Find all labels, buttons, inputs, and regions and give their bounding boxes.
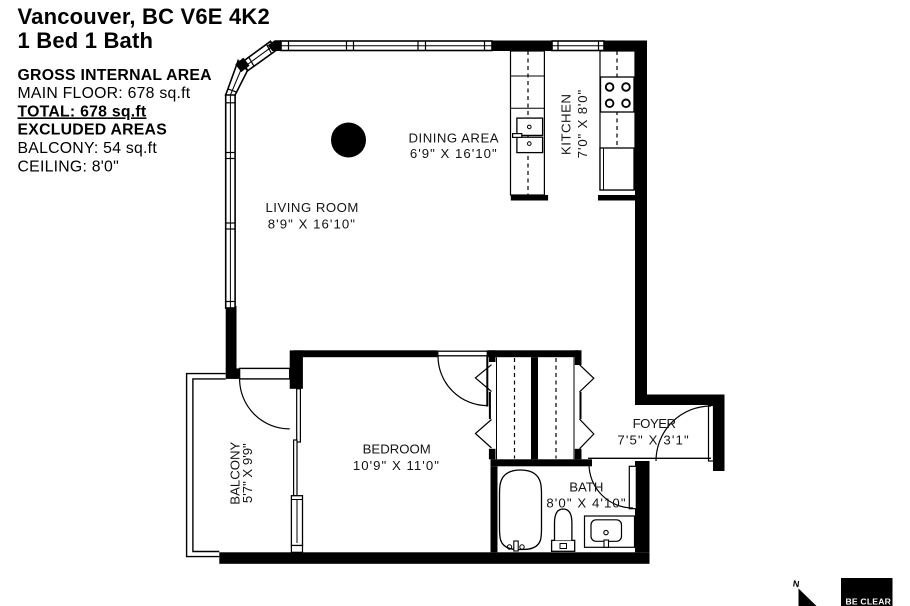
svg-text:7'5" X 3'1": 7'5" X 3'1"	[617, 433, 689, 448]
svg-text:EXCLUDED AREAS: EXCLUDED AREAS	[18, 122, 168, 139]
svg-text:MAIN FLOOR: 678 sq.ft: MAIN FLOOR: 678 sq.ft	[18, 85, 191, 102]
svg-text:7'0" X 8'0": 7'0" X 8'0"	[575, 89, 590, 158]
svg-text:KITCHEN: KITCHEN	[559, 94, 574, 155]
svg-text:LIVING ROOM: LIVING ROOM	[265, 200, 358, 215]
svg-text:N: N	[792, 578, 800, 589]
svg-text:CEILING: 8'0": CEILING: 8'0"	[18, 158, 119, 175]
svg-text:6'9" X 16'10": 6'9" X 16'10"	[410, 146, 498, 161]
svg-text:1 Bed 1 Bath: 1 Bed 1 Bath	[18, 28, 154, 53]
svg-text:DINING AREA: DINING AREA	[409, 131, 500, 146]
svg-text:BE CLEAR: BE CLEAR	[846, 597, 892, 606]
svg-text:8'0" X 4'10": 8'0" X 4'10"	[546, 495, 626, 510]
svg-text:10'9" X 11'0": 10'9" X 11'0"	[353, 458, 440, 473]
svg-text:FOYER: FOYER	[633, 416, 676, 431]
svg-text:BALCONY: 54 sq.ft: BALCONY: 54 sq.ft	[18, 140, 158, 157]
svg-text:TOTAL: 678 sq.ft: TOTAL: 678 sq.ft	[18, 103, 147, 120]
svg-text:Vancouver, BC V6E 4K2: Vancouver, BC V6E 4K2	[18, 4, 270, 29]
svg-text:BATH: BATH	[569, 480, 603, 495]
svg-text:BEDROOM: BEDROOM	[363, 442, 431, 457]
svg-text:5'7" X 9'9": 5'7" X 9'9"	[240, 443, 255, 503]
svg-text:GROSS INTERNAL AREA: GROSS INTERNAL AREA	[18, 67, 212, 84]
svg-text:8'9" X 16'10": 8'9" X 16'10"	[268, 217, 356, 232]
